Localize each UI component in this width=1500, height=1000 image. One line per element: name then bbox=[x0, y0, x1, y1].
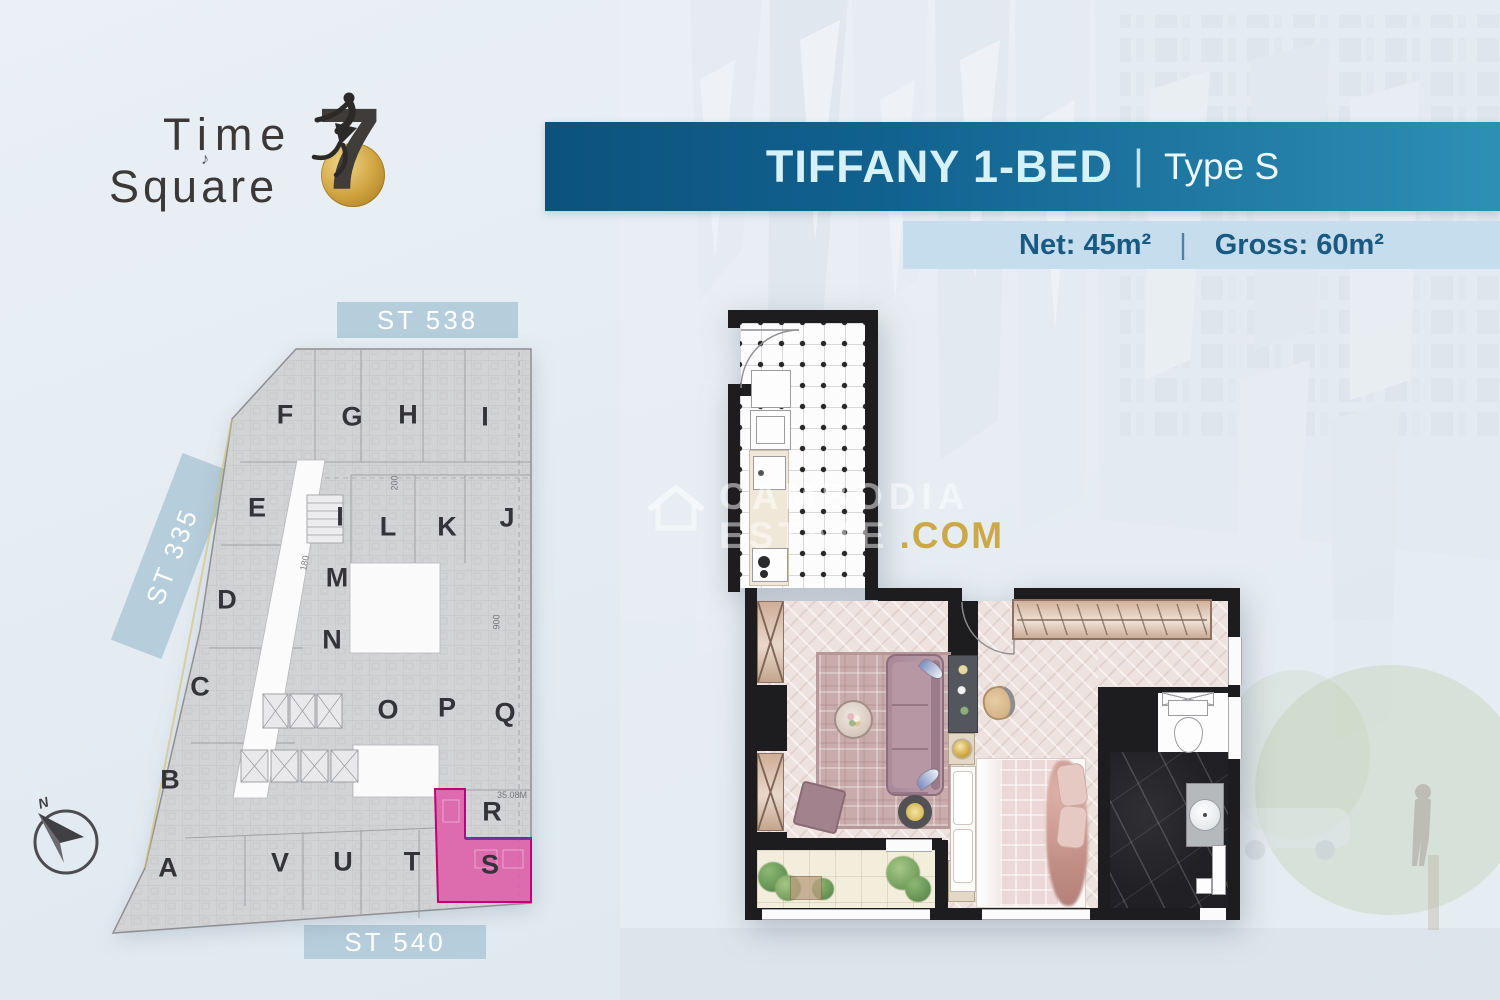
compass-n-label: N bbox=[36, 793, 51, 812]
spec-divider: | bbox=[1179, 229, 1187, 262]
unit-title-banner: TIFFANY 1-BED | Type S bbox=[545, 122, 1500, 211]
house-icon bbox=[645, 478, 707, 536]
unit-title: TIFFANY 1-BED bbox=[766, 141, 1113, 193]
music-note-icon: ♪ bbox=[201, 151, 209, 169]
watermark-suffix: .COM bbox=[899, 517, 1004, 556]
title-divider: | bbox=[1133, 141, 1144, 189]
unit-type: Type S bbox=[1164, 146, 1279, 188]
gross-area: Gross: 60m² bbox=[1215, 229, 1384, 262]
road bbox=[620, 928, 1500, 1000]
tree-trunk bbox=[1428, 855, 1439, 930]
stairs-icon bbox=[307, 495, 343, 543]
logo-line-2: Square bbox=[109, 161, 278, 213]
time-square-7-logo: 7 Time Square ♪ bbox=[105, 85, 435, 250]
courtyard bbox=[350, 563, 440, 653]
watermark-line2: ESTATE bbox=[719, 517, 889, 556]
site-plan bbox=[90, 330, 560, 955]
logo-line-1: Time bbox=[163, 109, 293, 161]
net-area: Net: 45m² bbox=[1019, 229, 1151, 262]
north-compass-icon: N bbox=[18, 793, 110, 885]
dancer-icon bbox=[283, 87, 393, 179]
area-spec-banner: Net: 45m² | Gross: 60m² bbox=[903, 221, 1500, 269]
watermark: CAMBODIA ESTATE .COM bbox=[645, 478, 1004, 556]
watermark-line1: CAMBODIA bbox=[719, 478, 1004, 517]
